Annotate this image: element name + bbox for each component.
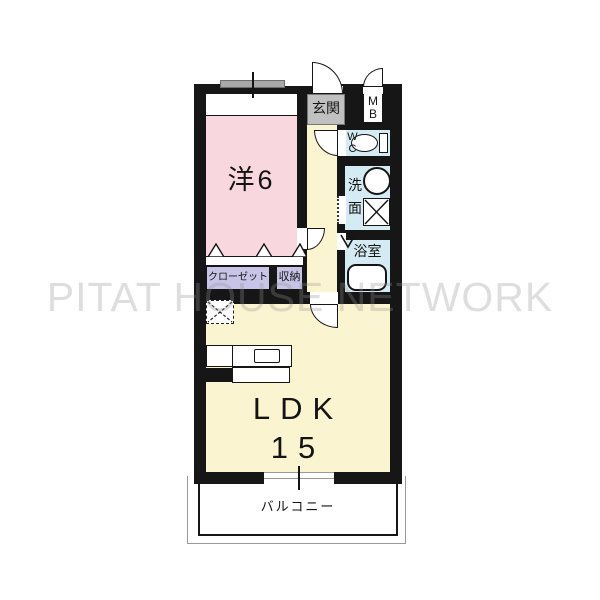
wc-label-w: W [346, 131, 359, 143]
watermark: PITAT HOUSE NETWORK [47, 274, 553, 321]
ldk-label-line2: 15 [206, 431, 390, 465]
entrance-label: 玄関 [307, 101, 345, 116]
kitchen-sink-icon [254, 349, 280, 363]
washroom-label-2: 面 [347, 197, 363, 220]
room-western-label: 洋6 [206, 166, 297, 196]
wc-label: W C [346, 131, 359, 155]
toilet-tank-icon [379, 133, 388, 153]
balcony-label: バルコニー [198, 500, 398, 514]
window-top-tick [252, 72, 254, 98]
meter-box-label-b: B [362, 108, 384, 121]
kitchen-stove-icon [206, 368, 232, 382]
wall-wc-washroom [337, 156, 402, 166]
washroom-label: 洗 面 [347, 174, 363, 220]
closet-door-track [206, 256, 303, 266]
entrance-door-swing-icon [312, 62, 343, 94]
wc-doorway-gap [337, 130, 346, 156]
room-ldk-label: LDK 15 [206, 392, 390, 465]
ldk-label-line1: LDK [206, 392, 390, 426]
kitchen-counter-divider [232, 345, 233, 367]
washroom-label-1: 洗 [347, 174, 363, 197]
washing-machine-x-icon [363, 198, 390, 226]
sink-icon [363, 167, 391, 195]
floorplan-page: { "watermark": "PITAT HOUSE NETWORK", "c… [0, 0, 600, 600]
meter-box-door-swing-icon [363, 68, 383, 87]
window-bottom-tick [298, 466, 300, 490]
washroom-sliding-door-icon [337, 196, 346, 224]
wc-label-c: C [346, 143, 359, 155]
closet-folding-door-icon [203, 243, 307, 257]
wall-bedroom-hall-upper [297, 94, 307, 228]
meter-box-gap [363, 86, 383, 94]
meter-box-label: M B [362, 95, 384, 121]
kitchen-lower-cabinet [232, 367, 290, 383]
bathroom-label: 浴室 [345, 244, 390, 259]
